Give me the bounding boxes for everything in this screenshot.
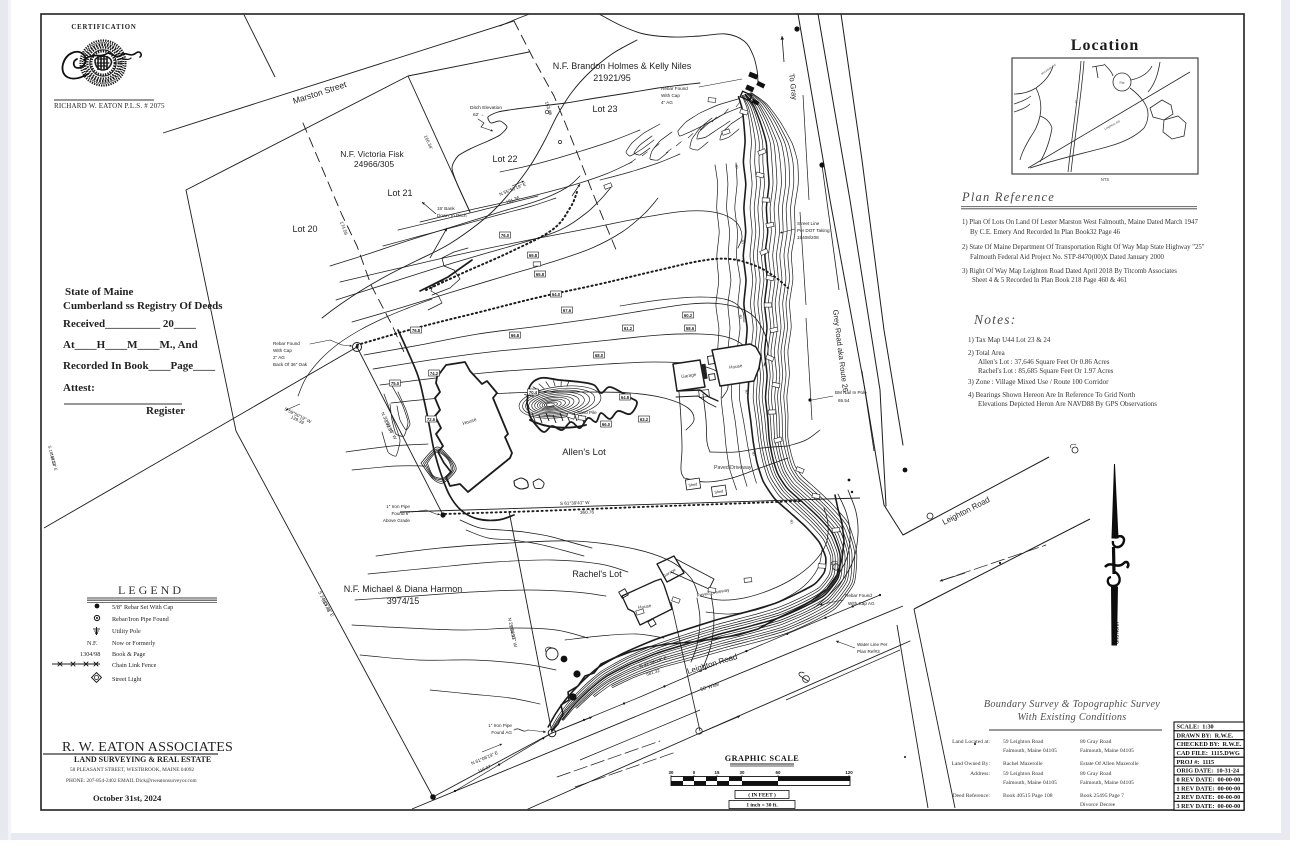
svg-text:75.0: 75.0: [391, 381, 400, 386]
svg-text:63.2: 63.2: [640, 417, 649, 422]
svg-text:Found AG: Found AG: [491, 730, 512, 735]
svg-text:Falmouth, Maine 04105: Falmouth, Maine 04105: [1003, 780, 1057, 786]
svg-text:61.2: 61.2: [624, 326, 633, 331]
svg-text:Notes:: Notes:: [973, 312, 1016, 327]
svg-text:RICHARD W. EATON P.L.S. # 207: RICHARD W. EATON P.L.S. # 2075: [54, 102, 165, 110]
svg-text:30: 30: [669, 770, 674, 775]
svg-text:Lot 20: Lot 20: [292, 224, 317, 234]
svg-text:65.54: 65.54: [838, 398, 850, 403]
svg-text:Recorded In Book____Page____: Recorded In Book____Page____: [63, 360, 216, 372]
svg-text:S 61°39'41" W: S 61°39'41" W: [560, 500, 590, 506]
svg-text:Deed Reference:: Deed Reference:: [953, 792, 991, 799]
svg-text:N.F. Victoria Fisk: N.F. Victoria Fisk: [340, 149, 404, 159]
svg-text:October 31st, 2024: October 31st, 2024: [93, 793, 162, 803]
svg-text:65.8: 65.8: [536, 272, 545, 277]
svg-text:CHECKED BY: R.W.E.: CHECKED BY: R.W.E.: [1177, 741, 1242, 748]
svg-text:1) Tax Map U44 Lot 23 & 24: 1) Tax Map U44 Lot 23 & 24: [968, 336, 1051, 344]
svg-text:Attest:: Attest:: [63, 382, 95, 394]
svg-text:Rebar Found: Rebar Found: [273, 341, 300, 346]
svg-text:ORIG DATE: 10-31-24: ORIG DATE: 10-31-24: [1177, 768, 1240, 775]
svg-text:3 REV DATE: 00-00-00: 3 REV DATE: 00-00-00: [1177, 803, 1241, 810]
svg-text:SCALE: 1:30: SCALE: 1:30: [1177, 724, 1214, 731]
svg-text:GRAPHIC SCALE: GRAPHIC SCALE: [725, 754, 800, 763]
svg-text:Rachel's Lot : 85,685 Square F: Rachel's Lot : 85,685 Square Feet Or 1.9…: [978, 367, 1114, 375]
svg-text:N.F.: N.F.: [87, 640, 98, 647]
svg-text:Rebar Found: Rebar Found: [661, 86, 688, 91]
svg-text:360.76: 360.76: [580, 509, 595, 515]
svg-text:BM Nail In Pole: BM Nail In Pole: [835, 390, 867, 395]
svg-text:3) Zone : Village Mixed Use /: 3) Zone : Village Mixed Use / Route 100 …: [968, 378, 1109, 386]
svg-text:Lot 23: Lot 23: [592, 104, 617, 114]
svg-text:Rte: Rte: [1120, 81, 1125, 85]
svg-text:Grid North: Grid North: [1115, 622, 1120, 644]
svg-text:64.0: 64.0: [552, 292, 561, 297]
svg-text:Estate Of Allen Mazerolle: Estate Of Allen Mazerolle: [1080, 760, 1139, 767]
svg-text:59 Leighton Road: 59 Leighton Road: [1003, 771, 1044, 777]
svg-text:62' ←: 62' ←: [473, 112, 485, 118]
svg-text:With Cap: With Cap: [661, 93, 680, 98]
svg-text:Location: Location: [1071, 37, 1139, 54]
svg-text:80 Gray Road: 80 Gray Road: [1080, 771, 1112, 777]
svg-text:N.F. Michael & Diana Harmon: N.F. Michael & Diana Harmon: [344, 584, 463, 594]
svg-text:CERTIFICATION: CERTIFICATION: [71, 24, 136, 31]
svg-text:24966/305: 24966/305: [354, 159, 394, 169]
svg-text:4) Bearings Shown Hereon Are I: 4) Bearings Shown Hereon Are In Referenc…: [968, 391, 1136, 399]
svg-text:Rebar/Iron Pipe Found: Rebar/Iron Pipe Found: [112, 616, 170, 623]
svg-text:1 inch = 30 ft.: 1 inch = 30 ft.: [746, 803, 778, 809]
svg-text:Lot 22: Lot 22: [492, 154, 517, 164]
svg-text:Street Light: Street Light: [112, 676, 142, 683]
svg-text:64.8: 64.8: [621, 395, 630, 400]
svg-text:1" Iron Pipe: 1" Iron Pipe: [386, 504, 410, 509]
svg-text:76.0: 76.0: [501, 233, 510, 238]
svg-text:Sand Pile: Sand Pile: [577, 410, 597, 415]
svg-text:Rachel Mazerolle: Rachel Mazerolle: [1003, 761, 1043, 767]
svg-text:Ditch Elevation: Ditch Elevation: [470, 105, 502, 111]
svg-text:5/8" Rebar Set With Cap: 5/8" Rebar Set With Cap: [112, 604, 173, 611]
svg-text:74.2: 74.2: [430, 371, 439, 376]
svg-text:At____H____M____M., And: At____H____M____M., And: [63, 339, 198, 351]
svg-text:Lot 21: Lot 21: [387, 188, 412, 198]
svg-text:Back Of 36" Oak: Back Of 36" Oak: [273, 362, 308, 367]
svg-text:59 Leighton Road: 59 Leighton Road: [1003, 739, 1044, 745]
svg-text:58.6: 58.6: [686, 326, 695, 331]
svg-text:3974/15: 3974/15: [387, 596, 420, 606]
svg-text:LAND SURVEYING & REAL ESTATE: LAND SURVEYING & REAL ESTATE: [74, 755, 211, 764]
svg-text:PHONE: 207-854-2402 EMAIL Dic: PHONE: 207-854-2402 EMAIL Dick@rweatonsu…: [66, 778, 197, 784]
svg-text:Allen's Lot : 37,646 Square Fe: Allen's Lot : 37,646 Square Feet Or 0.86…: [978, 358, 1110, 366]
svg-text:Falmouth, Maine 04105: Falmouth, Maine 04105: [1080, 748, 1134, 754]
svg-text:2) State Of Maine Department O: 2) State Of Maine Department Of Transpor…: [962, 244, 1205, 251]
svg-text:State of Maine: State of Maine: [65, 286, 134, 298]
svg-text:Rachel's Lot: Rachel's Lot: [572, 569, 622, 579]
svg-text:68.0: 68.0: [595, 353, 604, 358]
svg-text:60: 60: [776, 770, 781, 775]
svg-text:R. W. EATON ASSOCIATES: R. W. EATON ASSOCIATES: [62, 740, 233, 755]
svg-text:1) Plan Of Lots On Land Of Les: 1) Plan Of Lots On Land Of Lester Marsto…: [962, 219, 1198, 226]
svg-text:Rebar Found: Rebar Found: [845, 593, 872, 598]
svg-text:2) Total Area: 2) Total Area: [968, 349, 1006, 357]
svg-text:2" AG: 2" AG: [273, 355, 285, 360]
svg-text:120: 120: [845, 770, 853, 775]
svg-text:Water Line Per: Water Line Per: [857, 642, 888, 647]
svg-text:76.8: 76.8: [412, 328, 421, 333]
svg-text:Boundary Survey & Topographic: Boundary Survey & Topographic Survey: [984, 699, 1160, 710]
svg-text:1304/98: 1304/98: [80, 651, 100, 658]
svg-text:Falmouth Federal Aid Project N: Falmouth Federal Aid Project No. STP-847…: [970, 254, 1164, 261]
svg-text:PROJ #: 1115: PROJ #: 1115: [1177, 759, 1215, 766]
svg-text:Utility Pole: Utility Pole: [112, 628, 141, 635]
svg-text:1" Iron Pipe: 1" Iron Pipe: [488, 723, 512, 728]
svg-text:60.2: 60.2: [684, 313, 693, 318]
svg-text:Book 25495 Page 7: Book 25495 Page 7: [1080, 793, 1124, 799]
svg-text:( IN FEET ): ( IN FEET ): [748, 792, 776, 799]
svg-text:69.8: 69.8: [529, 253, 538, 258]
svg-text:Chain Link Fence: Chain Link Fence: [112, 662, 157, 669]
svg-text:2 REV DATE: 00-00-00: 2 REV DATE: 00-00-00: [1177, 794, 1241, 801]
svg-text:Plan Reference: Plan Reference: [961, 190, 1055, 204]
svg-text:Found 6": Found 6": [392, 511, 411, 516]
svg-text:Land Located at:: Land Located at:: [952, 739, 990, 745]
svg-text:Received__________ 20____: Received__________ 20____: [63, 318, 196, 330]
svg-text:Above Grade: Above Grade: [383, 518, 411, 523]
svg-text:66.8: 66.8: [511, 333, 520, 338]
svg-text:Plan Ref#3: Plan Ref#3: [857, 649, 880, 654]
svg-text:3) Right Of Way Map Leighton R: 3) Right Of Way Map Leighton Road Dated …: [962, 268, 1177, 275]
svg-text:21921/95: 21921/95: [593, 73, 631, 83]
svg-text:Elevations Depicted Heron Are: Elevations Depicted Heron Are NAVD88 By …: [978, 400, 1157, 408]
svg-text:Book 40515 Page 108: Book 40515 Page 108: [1003, 793, 1053, 799]
svg-text:Book & Page: Book & Page: [112, 651, 146, 658]
svg-text:67.6: 67.6: [563, 308, 572, 313]
svg-text:Falmouth, Maine 04105: Falmouth, Maine 04105: [1080, 780, 1134, 786]
svg-text:With Existing Conditions: With Existing Conditions: [1017, 712, 1126, 723]
svg-text:66.0: 66.0: [602, 422, 611, 427]
svg-text:15: 15: [715, 770, 720, 775]
svg-text:Register: Register: [146, 405, 185, 417]
svg-text:Per DOT Taking: Per DOT Taking: [797, 228, 830, 233]
svg-text:LEGEND: LEGEND: [118, 583, 184, 597]
svg-text:15408/208: 15408/208: [797, 235, 819, 240]
svg-text:Paved Driveway: Paved Driveway: [714, 465, 752, 471]
svg-text:30: 30: [740, 770, 745, 775]
svg-text:80 Gray Road: 80 Gray Road: [1080, 739, 1112, 745]
svg-text:Falmouth, Maine 04105: Falmouth, Maine 04105: [1003, 748, 1057, 754]
svg-text:Now or Formerly: Now or Formerly: [112, 640, 156, 647]
svg-text:Cumberland ss Registry Of Dee: Cumberland ss Registry Of Deeds: [63, 300, 223, 312]
svg-text:CAD FILE: 1115.DWG: CAD FILE: 1115.DWG: [1177, 750, 1240, 757]
svg-text:With Cap AG: With Cap AG: [848, 601, 875, 606]
svg-text:DRAWN BY: R.W.E.: DRAWN BY: R.W.E.: [1177, 732, 1234, 739]
svg-text:1 REV DATE: 00-00-00: 1 REV DATE: 00-00-00: [1177, 785, 1241, 792]
svg-text:Street Line: Street Line: [797, 221, 820, 226]
svg-text:70.4: 70.4: [529, 390, 538, 395]
svg-text:0 REV DATE: 00-00-00: 0 REV DATE: 00-00-00: [1177, 777, 1241, 784]
svg-text:With Cap: With Cap: [273, 348, 292, 353]
svg-text:Allen's Lot: Allen's Lot: [562, 447, 606, 458]
svg-text:72.6: 72.6: [427, 417, 436, 422]
svg-text:N.F. Brandon Holmes & Kelly Ni: N.F. Brandon Holmes & Kelly Niles: [553, 61, 692, 71]
svg-text:Sheet 4 & 5 Recorded In Plan B: Sheet 4 & 5 Recorded In Plan Book 218 Pa…: [972, 277, 1127, 284]
svg-text:58 PLEASANT STREET, WESTBROOK,: 58 PLEASANT STREET, WESTBROOK, MAINE 040…: [70, 767, 194, 773]
svg-text:Address:: Address:: [970, 771, 990, 777]
svg-text:Down To Ditch: Down To Ditch: [437, 213, 467, 218]
svg-text:4" AG: 4" AG: [661, 100, 673, 105]
svg-text:By C.E. Emery And Recorded In: By C.E. Emery And Recorded In Plan Book3…: [970, 229, 1121, 236]
svg-text:NTS: NTS: [1101, 177, 1110, 182]
svg-text:Land Owned By:: Land Owned By:: [951, 761, 990, 767]
svg-text:Divorce Decree: Divorce Decree: [1080, 802, 1116, 808]
svg-text:15' Bank: 15' Bank: [437, 206, 455, 211]
